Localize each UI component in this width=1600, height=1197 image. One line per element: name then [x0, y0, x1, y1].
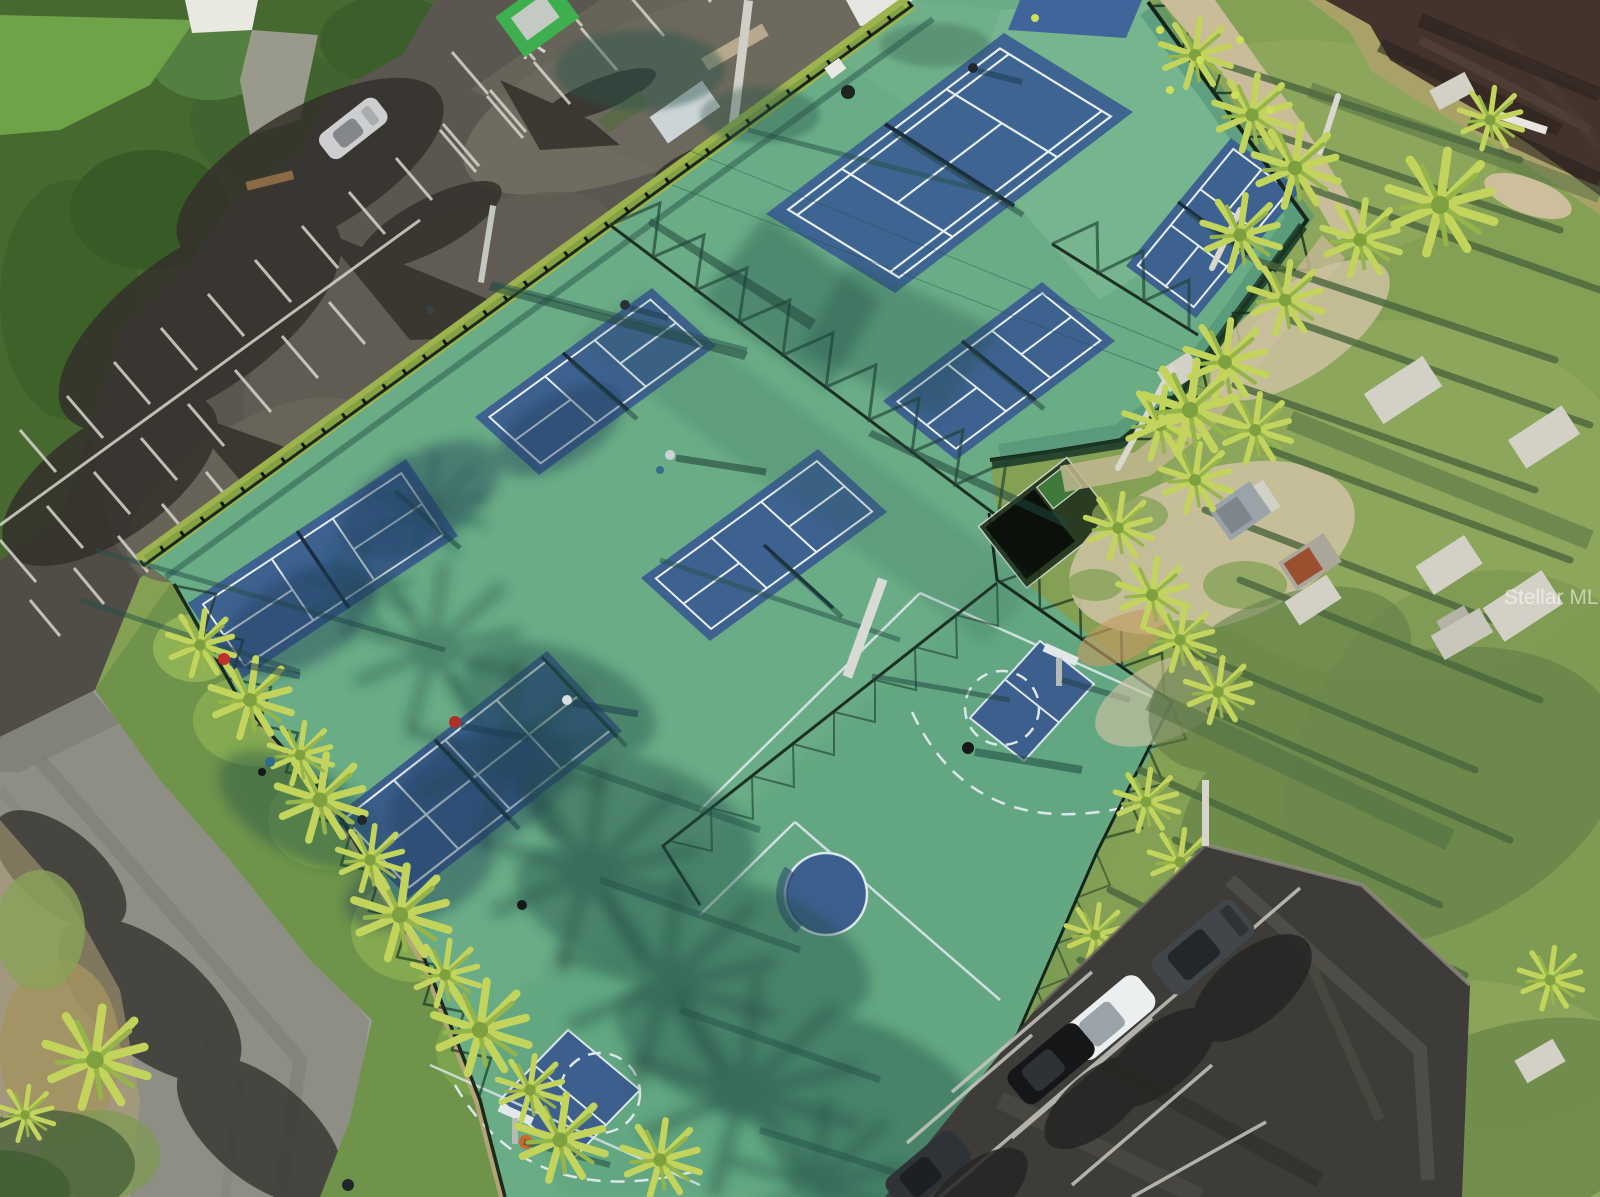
svg-text:Stellar MLS: Stellar MLS	[1504, 586, 1600, 609]
